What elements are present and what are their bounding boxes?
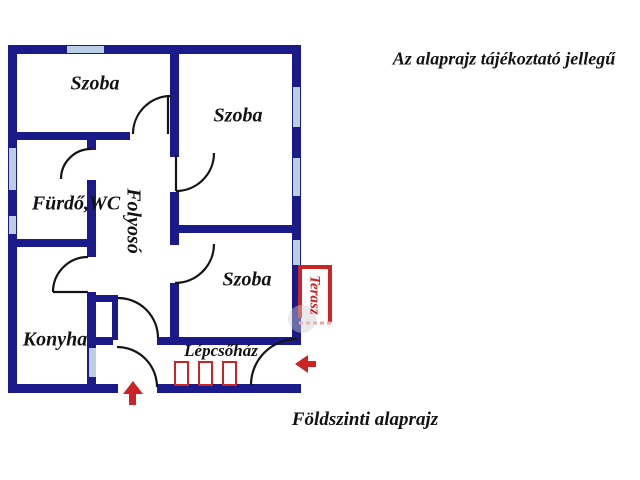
door-arc-szoba-top-right: [176, 153, 214, 191]
wall-top: [8, 45, 301, 54]
window-right-lower: [293, 240, 300, 265]
door-arc-szoba-top-left: [133, 96, 171, 134]
disclaimer-text: Az alaprajz tájékoztató jellegű: [393, 49, 616, 70]
wall-vestibule-side: [112, 302, 118, 340]
door-arc-vestibule-inner: [118, 298, 158, 338]
room-label-furdo-wc: Fürdő,WC: [32, 193, 120, 216]
door-arc-konyha: [53, 257, 88, 292]
arrow-left-shaft: [307, 361, 316, 367]
room-label-terasz: Terasz: [306, 275, 323, 314]
window-left-upper: [9, 148, 16, 190]
wall-bottom-left: [8, 384, 118, 393]
wall-vestibule-stub: [96, 295, 118, 302]
wall-szoba-tl-bottom: [8, 132, 130, 140]
arrow-up-shaft: [129, 394, 136, 405]
plan-caption: Földszinti alaprajz: [292, 409, 438, 431]
room-label-szoba-middle: Szoba: [223, 269, 272, 292]
wall-center-vertical-middle: [170, 192, 179, 245]
room-label-konyha: Konyha: [23, 329, 87, 352]
room-label-lepcsohaz: Lépcsőház: [184, 341, 258, 361]
wall-furdo-konyha: [8, 239, 88, 247]
wall-szoba-divider: [170, 225, 301, 233]
stair-step: [223, 362, 236, 385]
wall-center-vertical-upper: [170, 53, 179, 157]
door-arc-furdo: [61, 149, 91, 179]
wall-stair-top-left: [87, 337, 113, 345]
stair-step: [199, 362, 212, 385]
room-label-szoba-top-left: Szoba: [71, 73, 120, 96]
window-right-upper: [293, 87, 300, 127]
floor-plan-page: Szoba Szoba Szoba Fürdő,WC Folyosó Konyh…: [0, 0, 640, 480]
window-left-lower: [9, 216, 16, 234]
entry-arrows-group: [123, 355, 316, 405]
door-arc-szoba-middle: [175, 244, 214, 283]
arrow-up-icon: [123, 381, 143, 394]
wall-center-vertical-lower: [170, 283, 179, 338]
stairs-icon: [175, 362, 236, 385]
door-arc-entry: [117, 347, 157, 387]
wall-stub-furdo: [87, 132, 96, 150]
stair-step: [175, 362, 188, 385]
window-top: [67, 46, 104, 53]
room-label-folyoso: Folyosó: [122, 188, 145, 254]
window-interior-vestibule: [89, 348, 96, 377]
arrow-left-icon: [295, 355, 308, 373]
room-label-szoba-top-right: Szoba: [214, 105, 263, 128]
window-right-middle: [293, 158, 300, 196]
